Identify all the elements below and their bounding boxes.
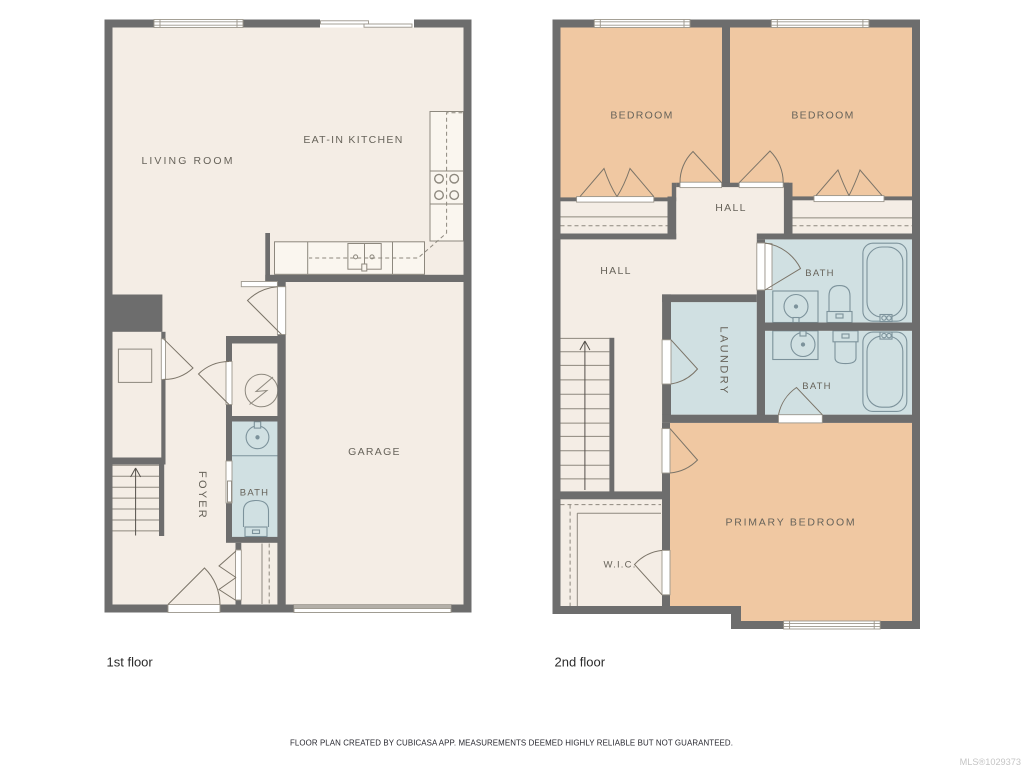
- svg-text:HALL: HALL: [600, 265, 631, 277]
- svg-text:EAT-IN KITCHEN: EAT-IN KITCHEN: [303, 134, 403, 146]
- svg-text:BATH: BATH: [802, 381, 831, 392]
- svg-text:LAUNDRY: LAUNDRY: [718, 326, 730, 395]
- svg-text:GARAGE: GARAGE: [348, 446, 401, 458]
- svg-text:PRIMARY BEDROOM: PRIMARY BEDROOM: [726, 517, 857, 529]
- svg-text:2nd floor: 2nd floor: [555, 655, 606, 670]
- svg-text:BATH: BATH: [240, 488, 269, 499]
- svg-text:FOYER: FOYER: [196, 471, 208, 520]
- svg-text:LIVING ROOM: LIVING ROOM: [141, 155, 234, 167]
- svg-text:BEDROOM: BEDROOM: [791, 110, 854, 122]
- svg-text:W.I.C.: W.I.C.: [603, 560, 636, 571]
- svg-text:MLS®1029373: MLS®1029373: [960, 757, 1021, 767]
- svg-text:HALL: HALL: [715, 202, 746, 214]
- svg-text:1st floor: 1st floor: [107, 655, 154, 670]
- svg-text:BATH: BATH: [805, 268, 834, 279]
- svg-text:FLOOR PLAN CREATED BY CUBICASA: FLOOR PLAN CREATED BY CUBICASA APP. MEAS…: [290, 739, 733, 748]
- svg-text:BEDROOM: BEDROOM: [610, 110, 673, 122]
